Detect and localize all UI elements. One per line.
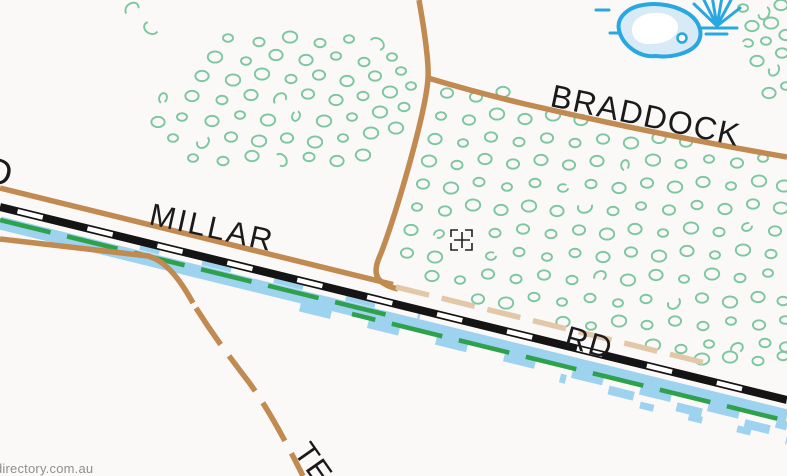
vegetation-circle xyxy=(285,75,296,84)
vegetation-circle xyxy=(600,228,614,239)
vegetation-circle xyxy=(422,155,436,166)
map-tile: D MILLAR RD BRADDOCK TE xyxy=(0,0,787,476)
vegetation-circle xyxy=(522,200,536,211)
vegetation-circle xyxy=(723,296,737,307)
vegetation-circle xyxy=(534,155,547,165)
vegetation-circle xyxy=(557,298,567,306)
vegetation-circle xyxy=(507,159,519,168)
vegetation-circle xyxy=(168,134,178,142)
vegetation-circle xyxy=(401,248,413,257)
vegetation-circle xyxy=(764,17,778,28)
vegetation-circle xyxy=(208,51,222,62)
vegetation-circle xyxy=(356,149,370,160)
vegetation-circle xyxy=(780,316,787,324)
vegetation-circle xyxy=(729,341,744,355)
vegetation-circle xyxy=(668,181,682,192)
vegetation-circle xyxy=(763,269,773,277)
vegetation-circle xyxy=(373,106,387,117)
vegetation-circle xyxy=(750,56,763,66)
vegetation-circle xyxy=(502,183,512,191)
vegetation-circle xyxy=(696,177,709,187)
vegetation-circle xyxy=(458,139,468,147)
vegetation-circle xyxy=(558,184,568,192)
vegetation-circle xyxy=(776,48,787,57)
vegetation-circle xyxy=(344,35,354,43)
vegetation-circle xyxy=(225,132,237,141)
vegetation-circle xyxy=(226,74,240,85)
vegetation-circle xyxy=(177,113,187,121)
vegetation-circle xyxy=(613,299,623,307)
vegetation-circle xyxy=(666,295,683,312)
vegetation-circle xyxy=(607,207,618,216)
vegetation-circle xyxy=(781,82,787,90)
vegetation-circle xyxy=(550,206,563,216)
vegetation-circle xyxy=(569,139,580,148)
vegetation-circle xyxy=(569,249,580,258)
vegetation-circle xyxy=(331,52,341,60)
vegetation-circle xyxy=(358,58,369,67)
vegetation-circle xyxy=(235,111,245,119)
vegetation-circle xyxy=(774,202,787,213)
vegetation-circle xyxy=(529,179,540,188)
crosshair-cursor xyxy=(451,230,472,250)
vegetation-circle xyxy=(329,95,342,105)
vegetation-circle xyxy=(389,122,403,133)
vegetation-circle xyxy=(777,297,787,306)
vegetation-circle xyxy=(777,352,787,361)
vegetation-circle xyxy=(741,222,753,232)
vegetation-circle xyxy=(593,269,608,283)
label-te-road: TE xyxy=(287,436,340,476)
vegetation-circle xyxy=(205,116,218,126)
vegetation-circle xyxy=(510,275,521,284)
vegetation-circle xyxy=(774,0,787,10)
vegetation-circle xyxy=(253,38,264,47)
vegetation-circle xyxy=(406,82,416,90)
label-left-road-fragment: D xyxy=(0,149,16,195)
vegetation-circle xyxy=(753,320,765,329)
vegetation-circle xyxy=(313,70,325,79)
vegetation-circle xyxy=(652,250,666,261)
vegetation-circle xyxy=(704,155,714,163)
vegetation-circle xyxy=(742,38,753,47)
vegetation-circle xyxy=(752,175,766,186)
vegetation-circle xyxy=(640,295,651,304)
vegetation-circle xyxy=(517,224,529,233)
vegetation-circle xyxy=(188,154,198,162)
vegetation-circle xyxy=(697,322,708,331)
vegetation-circle xyxy=(486,252,496,260)
vegetation-circle xyxy=(482,269,494,278)
vegetation-circle xyxy=(751,292,764,302)
vegetation-circle xyxy=(641,321,652,330)
vegetation-circle xyxy=(649,270,662,280)
vegetation-circle xyxy=(428,251,442,262)
vegetation-circle xyxy=(368,35,386,52)
vegetation-circle xyxy=(252,135,266,146)
vegetation-circle xyxy=(620,159,629,170)
vegetation-circle xyxy=(691,201,702,210)
vegetation-circle xyxy=(636,202,646,210)
vegetation-circle xyxy=(675,345,686,354)
vegetation-circle xyxy=(612,183,625,193)
vegetation-circle xyxy=(269,50,282,60)
vegetation-circle xyxy=(745,21,758,31)
vegetation-circle xyxy=(123,0,141,18)
vegetation-circle xyxy=(241,57,251,65)
vegetation-circle xyxy=(624,137,638,148)
watermark-text: directory.com.au xyxy=(0,461,93,476)
vegetation-circle xyxy=(357,92,368,101)
vegetation-circle xyxy=(364,127,378,138)
vegetation-circle xyxy=(590,156,603,166)
vegetation-circle xyxy=(752,357,763,366)
vegetation-circle xyxy=(489,229,500,238)
vegetation-circle xyxy=(747,199,759,208)
vegetation-circle xyxy=(195,134,212,151)
vegetation-circle xyxy=(658,229,668,237)
te-road-dashed xyxy=(196,308,303,476)
vegetation-circle xyxy=(718,204,731,214)
lake-icon xyxy=(596,4,700,56)
vegetation-circle xyxy=(473,178,484,187)
vegetation-circle xyxy=(679,275,689,283)
vegetation-circle xyxy=(302,89,314,98)
vegetation-circle xyxy=(387,53,397,61)
vegetation-circle xyxy=(455,276,465,284)
vegetation-circle xyxy=(425,271,438,281)
vegetation-circle xyxy=(273,152,289,169)
vegetation-circle xyxy=(767,62,782,77)
vegetation-circle xyxy=(463,115,475,124)
vegetation-circle xyxy=(597,134,609,143)
vegetation-circle xyxy=(761,37,771,45)
vegetation-circle xyxy=(245,151,258,161)
vegetation-circle xyxy=(151,117,164,127)
vegetation-circle xyxy=(439,206,451,215)
vegetation-circle xyxy=(485,132,497,141)
vegetation-circle xyxy=(704,340,714,348)
vegetation-circle xyxy=(765,250,776,259)
vegetation-circle xyxy=(710,251,720,259)
vegetation-circle xyxy=(499,297,513,308)
vegetation-circle xyxy=(585,180,596,189)
vegetation-circle xyxy=(566,276,577,285)
vegetation-circle xyxy=(217,157,228,166)
vegetation-circle xyxy=(576,199,593,214)
vegetation-circle xyxy=(478,154,491,164)
lake-islet-dot xyxy=(678,34,687,43)
vegetation-circle xyxy=(283,31,297,42)
vegetation-circle xyxy=(612,315,626,326)
vegetation-circle xyxy=(444,182,458,193)
swamp-rays xyxy=(694,0,740,26)
vegetation-circle xyxy=(417,179,429,188)
vegetation-circle xyxy=(628,224,641,234)
vegetation-circle xyxy=(734,274,745,283)
vegetation-circle xyxy=(684,222,698,233)
vegetation-circle xyxy=(513,248,524,257)
vegetation-circle xyxy=(398,103,409,112)
vegetation-circle xyxy=(513,138,524,147)
vegetation-circle xyxy=(317,115,331,126)
vegetation-circle xyxy=(272,91,289,107)
vegetation-circle xyxy=(338,134,348,142)
vegetation-circle xyxy=(281,133,293,142)
vegetation-circle xyxy=(779,30,787,40)
vegetation-circle xyxy=(255,68,269,79)
vegetation-circle xyxy=(528,293,539,302)
vegetation-circle xyxy=(436,112,446,120)
vegetation-circle xyxy=(185,91,198,101)
vegetation-circle xyxy=(777,180,787,191)
vegetation-circle xyxy=(762,88,775,98)
vegetation-circle xyxy=(441,88,453,97)
vegetation-circle xyxy=(621,274,635,285)
vegetation-circle xyxy=(347,113,357,121)
crosshair-plus xyxy=(454,232,470,248)
vegetation-circle xyxy=(195,71,208,81)
vegetation-circle xyxy=(675,160,686,169)
vegetation-layer xyxy=(123,0,787,365)
vegetation-circle xyxy=(494,205,507,215)
vegetation-circle xyxy=(542,253,552,261)
vegetation-circle xyxy=(216,96,227,105)
vegetation-circle xyxy=(596,252,609,262)
vegetation-circle xyxy=(472,294,484,303)
vegetation-circle xyxy=(769,226,781,235)
vegetation-circle xyxy=(669,316,681,325)
vegetation-circle xyxy=(433,229,445,239)
vegetation-circle xyxy=(780,342,787,351)
vegetation-circle xyxy=(723,351,737,362)
vegetation-circle xyxy=(573,225,585,234)
vegetation-circle xyxy=(705,268,719,279)
vegetation-circle xyxy=(383,86,397,97)
vegetation-circle xyxy=(490,108,504,119)
vegetation-circle xyxy=(340,76,353,86)
vegetation-circle xyxy=(731,158,743,167)
label-braddock: BRADDOCK xyxy=(548,78,745,153)
vegetation-circle xyxy=(518,114,531,124)
vegetation-circle xyxy=(396,67,406,75)
vegetation-circle xyxy=(303,153,314,162)
vegetation-circle xyxy=(466,199,480,210)
vegetation-circle xyxy=(663,205,675,214)
vegetation-circle xyxy=(142,20,160,37)
vegetation-circle xyxy=(726,317,736,325)
vegetation-circle xyxy=(412,203,422,211)
map-canvas[interactable]: D MILLAR RD BRADDOCK TE directory.com.au xyxy=(0,0,787,476)
vegetation-circle xyxy=(451,161,462,170)
vegetation-circle xyxy=(538,270,550,279)
vegetation-circle xyxy=(736,244,750,255)
vegetation-circle xyxy=(314,39,325,48)
vegetation-circle xyxy=(646,154,660,165)
vegetation-circle xyxy=(713,228,724,237)
vegetation-circle xyxy=(759,339,770,348)
vegetation-circle xyxy=(308,136,322,147)
vegetation-circle xyxy=(291,110,302,122)
vegetation-circle xyxy=(625,247,637,256)
vegetation-circle xyxy=(680,246,693,256)
vegetation-circle xyxy=(756,5,771,22)
vegetation-circle xyxy=(541,133,553,142)
vegetation-circle xyxy=(726,182,736,190)
vegetation-circle xyxy=(330,156,343,166)
vegetation-circle xyxy=(641,178,653,187)
vegetation-circle xyxy=(223,34,233,42)
vegetation-circle xyxy=(563,160,575,169)
vegetation-circle xyxy=(369,71,381,80)
vegetation-circle xyxy=(584,294,595,303)
vegetation-circle xyxy=(244,90,257,100)
vegetation-circle xyxy=(158,92,169,104)
vegetation-circle xyxy=(545,230,556,239)
vegetation-circle xyxy=(404,225,417,235)
vegetation-circle xyxy=(299,55,312,65)
vegetation-circle xyxy=(261,114,275,125)
vegetation-circle xyxy=(696,293,708,302)
vegetation-circle xyxy=(428,134,441,144)
swamp-icon xyxy=(694,0,740,34)
